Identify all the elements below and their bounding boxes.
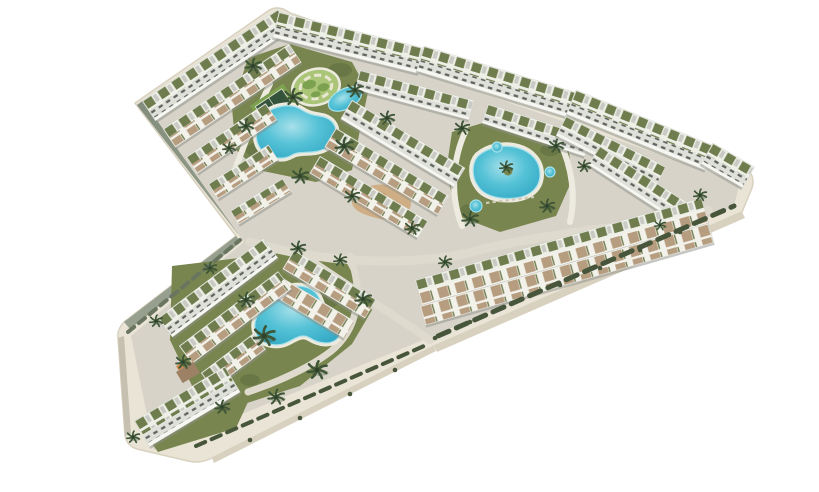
round-pool — [545, 167, 555, 177]
shrub — [433, 336, 438, 341]
round-pool — [492, 142, 502, 152]
aerial-site-render: Bird's-eye 3D render of a chevron-shaped… — [0, 0, 819, 492]
shrub — [518, 298, 523, 303]
shrub — [678, 230, 683, 235]
shrub — [393, 368, 398, 373]
shrub — [718, 210, 723, 215]
shrub — [348, 392, 353, 397]
shrub — [468, 320, 473, 325]
shrub — [248, 438, 253, 443]
shrub — [598, 266, 603, 271]
lawn-shade — [240, 374, 260, 386]
shrub — [298, 416, 303, 421]
render-canvas: Bird's-eye 3D render of a chevron-shaped… — [0, 0, 819, 492]
shrub — [638, 248, 643, 253]
shrub — [558, 283, 563, 288]
round-pool — [470, 200, 482, 212]
